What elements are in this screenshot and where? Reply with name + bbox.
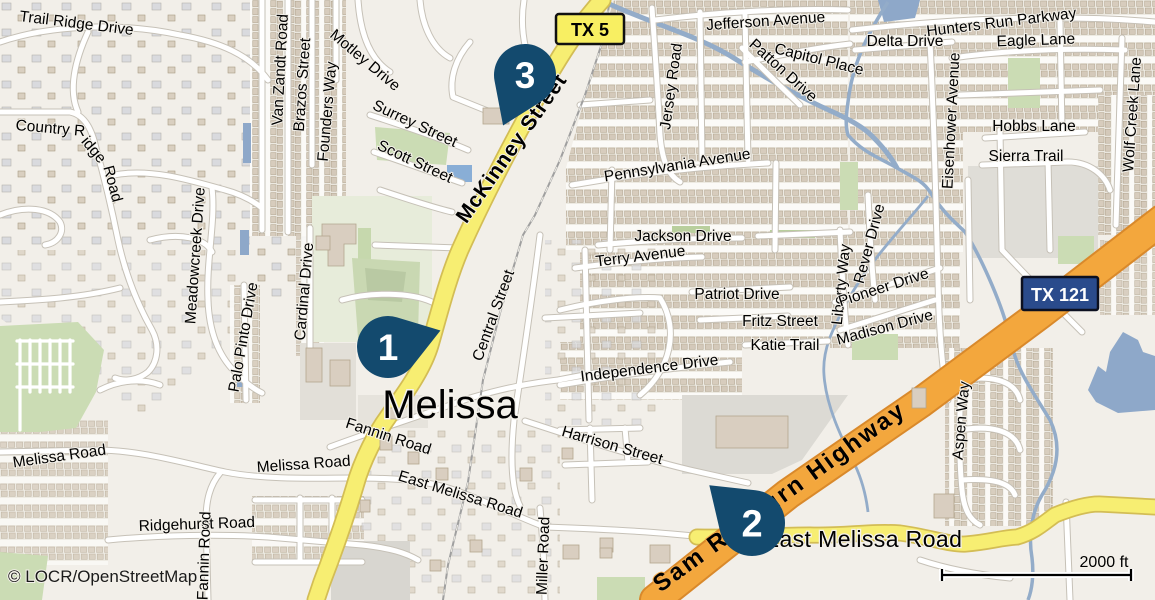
svg-text:2000 ft: 2000 ft: [1080, 554, 1129, 571]
svg-text:2: 2: [741, 504, 762, 546]
svg-text:3: 3: [515, 55, 536, 96]
svg-text:Hobbs Lane: Hobbs Lane: [992, 118, 1076, 135]
svg-text:TX 121: TX 121: [1031, 285, 1089, 305]
svg-text:Miller Road: Miller Road: [534, 516, 554, 595]
svg-text:Patriot Drive: Patriot Drive: [694, 286, 779, 303]
svg-text:East Melissa Road: East Melissa Road: [764, 526, 963, 552]
svg-text:Fritz Street: Fritz Street: [742, 313, 818, 330]
svg-text:Melissa: Melissa: [382, 383, 518, 427]
svg-text:Katie Trail: Katie Trail: [751, 337, 820, 354]
svg-text:© LOCR/OpenStreetMap: © LOCR/OpenStreetMap: [8, 567, 197, 586]
svg-text:TX 5: TX 5: [571, 20, 609, 40]
svg-text:Sierra Trail: Sierra Trail: [989, 148, 1064, 165]
svg-text:1: 1: [378, 327, 399, 368]
svg-text:Eagle Lane: Eagle Lane: [996, 31, 1075, 51]
